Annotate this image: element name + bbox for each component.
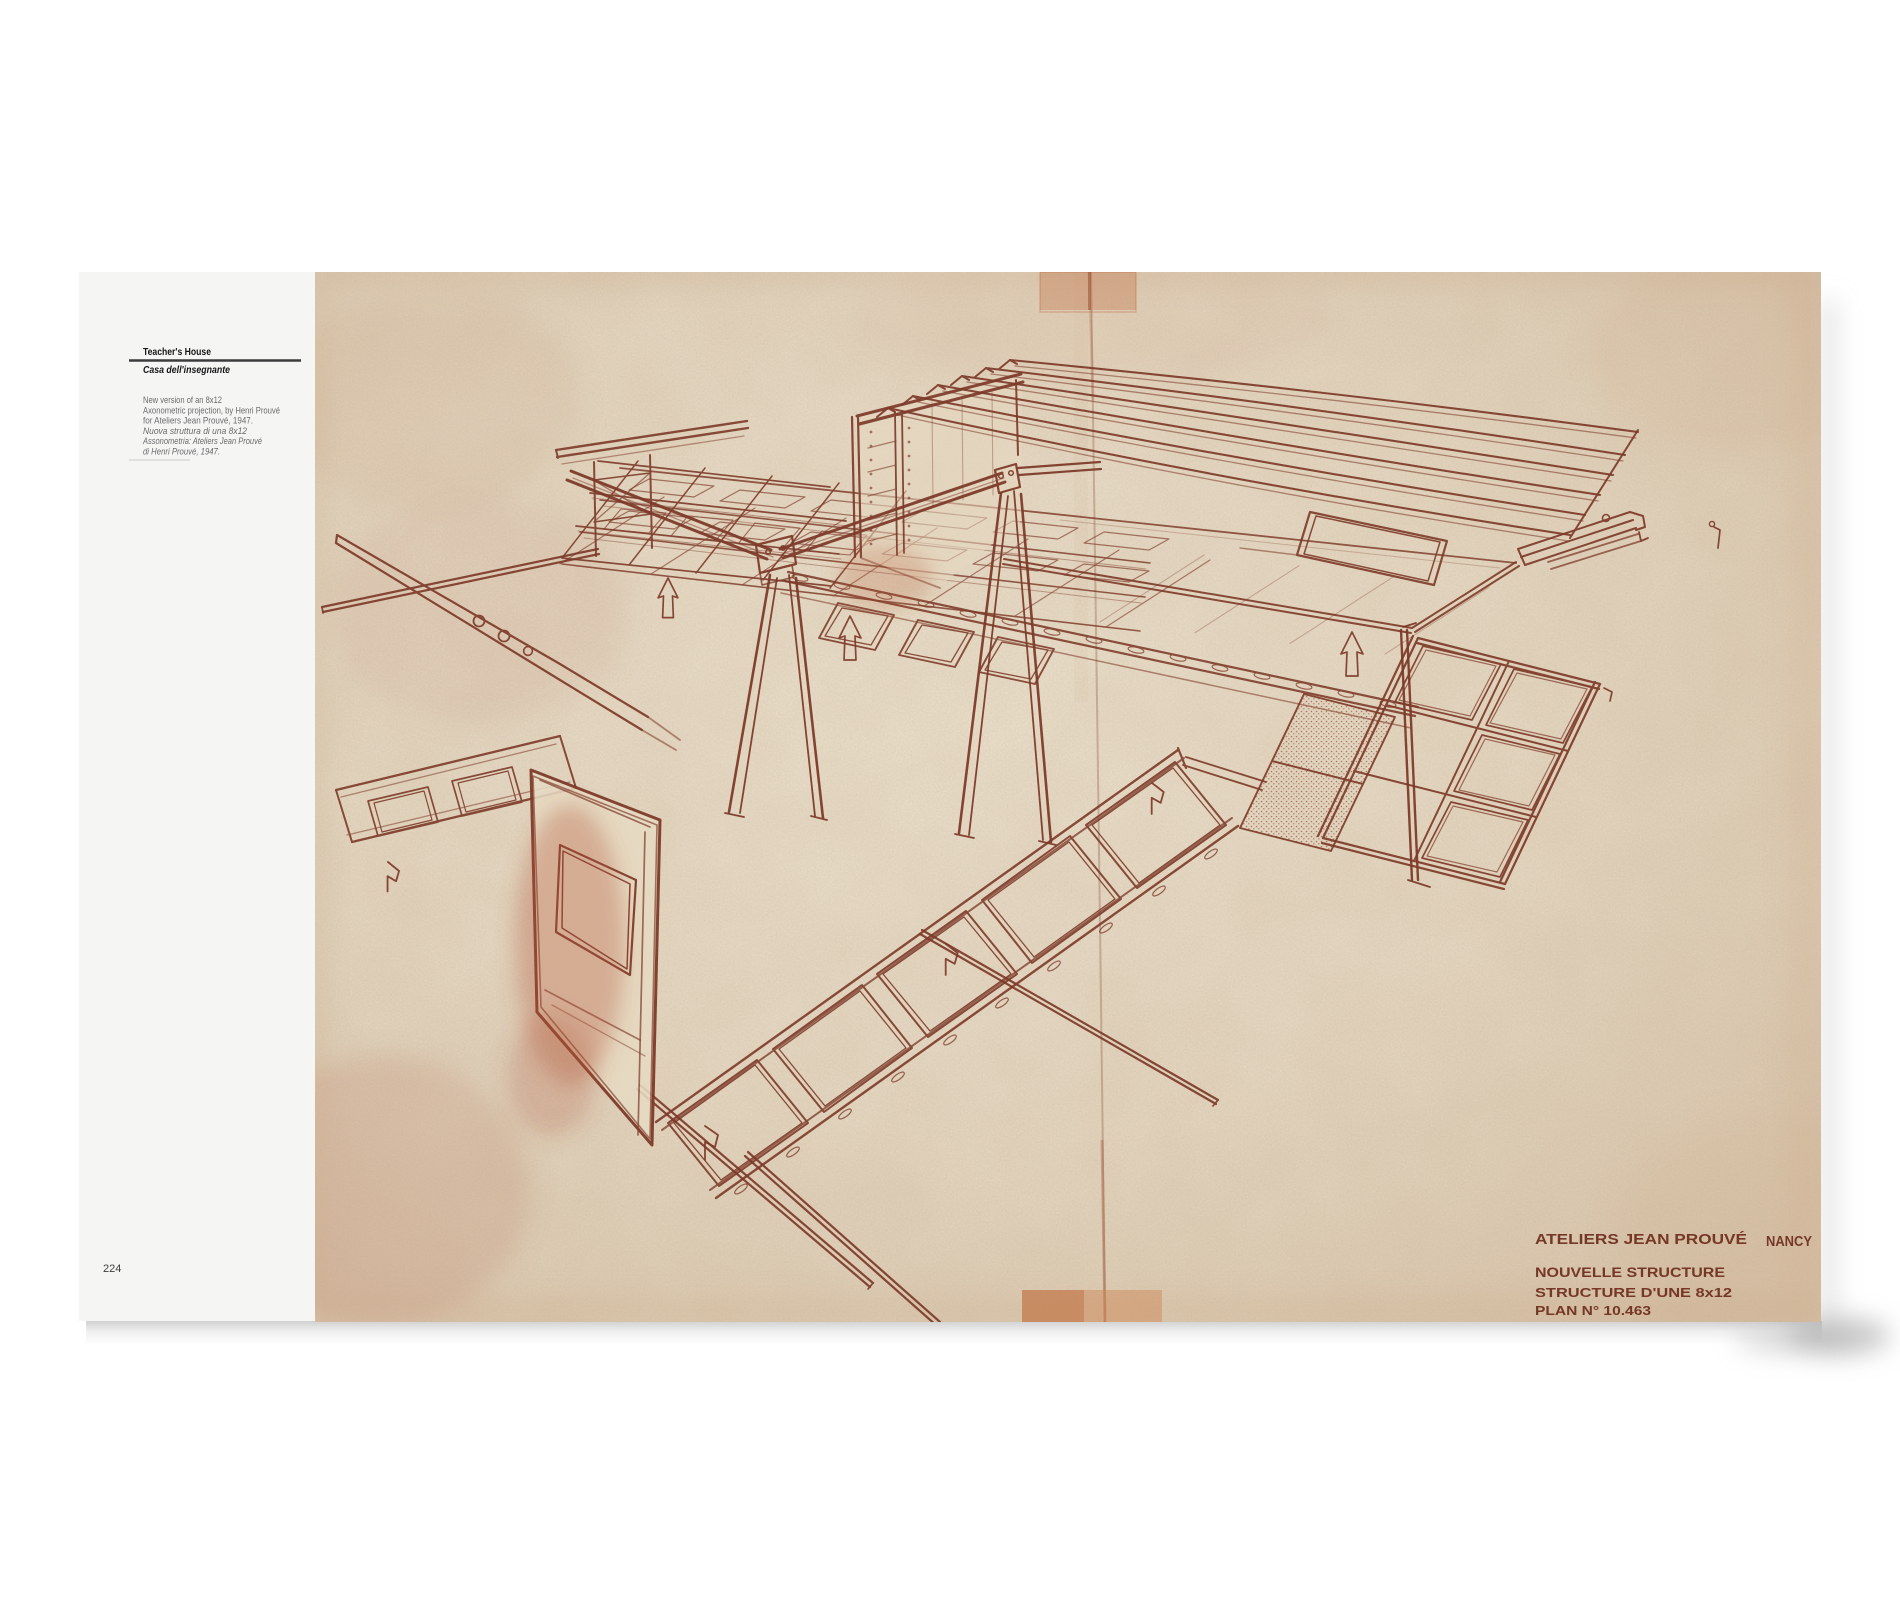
svg-text:224: 224: [103, 1263, 121, 1275]
svg-text:PLAN N° 10.463: PLAN N° 10.463: [1535, 1304, 1651, 1318]
svg-text:Axonometric projection, by Hen: Axonometric projection, by Henri Prouvé: [143, 405, 280, 415]
svg-text:Assonometria: Ateliers Jean Pr: Assonometria: Ateliers Jean Prouvé: [142, 436, 262, 446]
svg-text:Casa dell'insegnante: Casa dell'insegnante: [143, 365, 230, 376]
svg-text:NANCY: NANCY: [1766, 1234, 1812, 1250]
svg-text:ATELIERS JEAN PROUVÉ: ATELIERS JEAN PROUVÉ: [1535, 1231, 1747, 1248]
svg-text:New version of an 8x12: New version of an 8x12: [143, 395, 222, 405]
svg-text:Nuova struttura di una 8x12: Nuova struttura di una 8x12: [143, 426, 247, 436]
svg-text:for Ateliers Jean Prouvé, 1947: for Ateliers Jean Prouvé, 1947.: [143, 416, 253, 426]
svg-text:NOUVELLE STRUCTURE: NOUVELLE STRUCTURE: [1535, 1265, 1725, 1280]
svg-text:di Henri Prouvé, 1947.: di Henri Prouvé, 1947.: [143, 447, 220, 457]
svg-text:STRUCTURE D'UNE 8x12: STRUCTURE D'UNE 8x12: [1535, 1286, 1732, 1300]
svg-text:Teacher's House: Teacher's House: [143, 347, 211, 358]
